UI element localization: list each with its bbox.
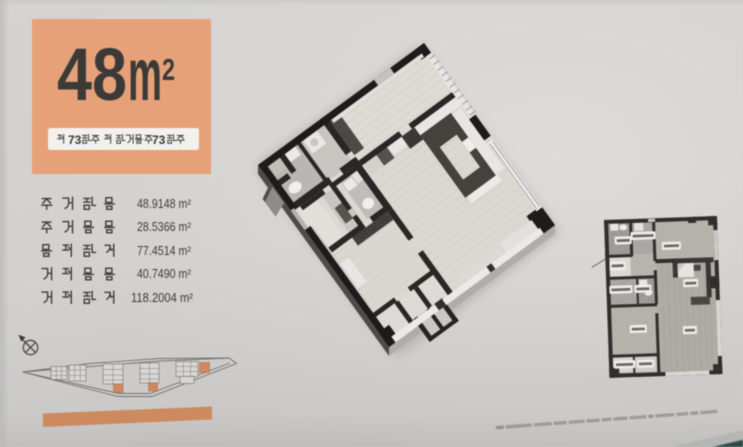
svg-text:48: 48: [57, 33, 127, 116]
svg-text:48.9148 m²: 48.9148 m²: [137, 196, 192, 211]
svg-text:77.4514 m²: 77.4514 m²: [137, 243, 192, 258]
svg-text:m: m: [128, 33, 162, 116]
svg-text:118.2004 m²: 118.2004 m²: [131, 290, 194, 305]
svg-text:2: 2: [162, 52, 175, 87]
svg-text:28.5366 m²: 28.5366 m²: [137, 219, 192, 234]
svg-text:73: 73: [68, 133, 82, 147]
svg-text:40.7490 m²: 40.7490 m²: [137, 266, 192, 281]
svg-text:73: 73: [152, 133, 166, 147]
